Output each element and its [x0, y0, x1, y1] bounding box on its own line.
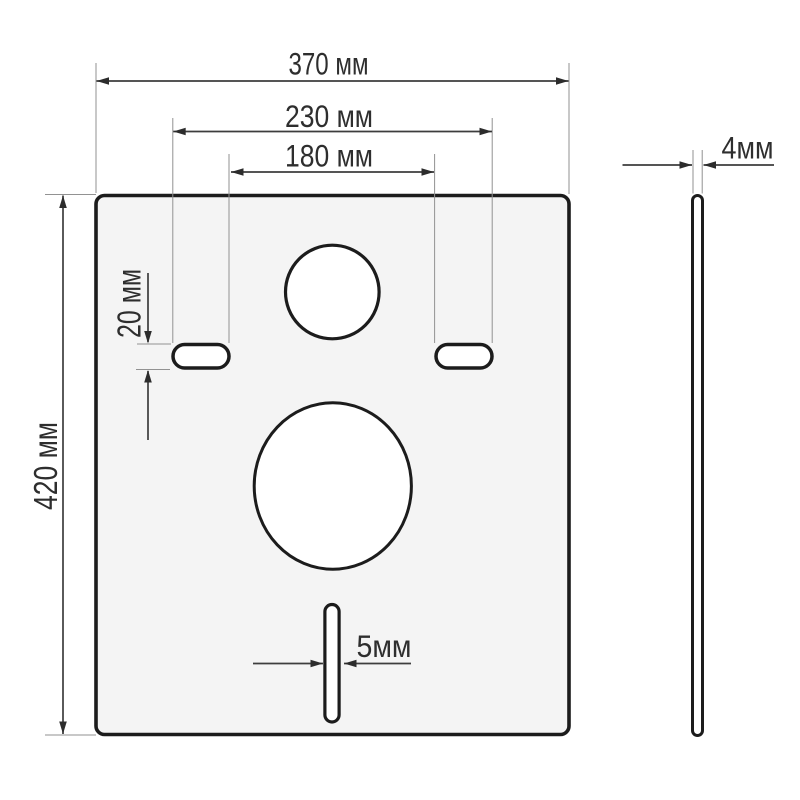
- svg-text:4мм: 4мм: [722, 130, 774, 166]
- svg-text:20 мм: 20 мм: [111, 269, 148, 338]
- svg-text:370 мм: 370 мм: [289, 46, 369, 82]
- svg-text:420 мм: 420 мм: [27, 422, 64, 510]
- svg-text:230 мм: 230 мм: [285, 98, 373, 134]
- svg-text:5мм: 5мм: [357, 628, 412, 664]
- svg-text:180 мм: 180 мм: [285, 138, 373, 174]
